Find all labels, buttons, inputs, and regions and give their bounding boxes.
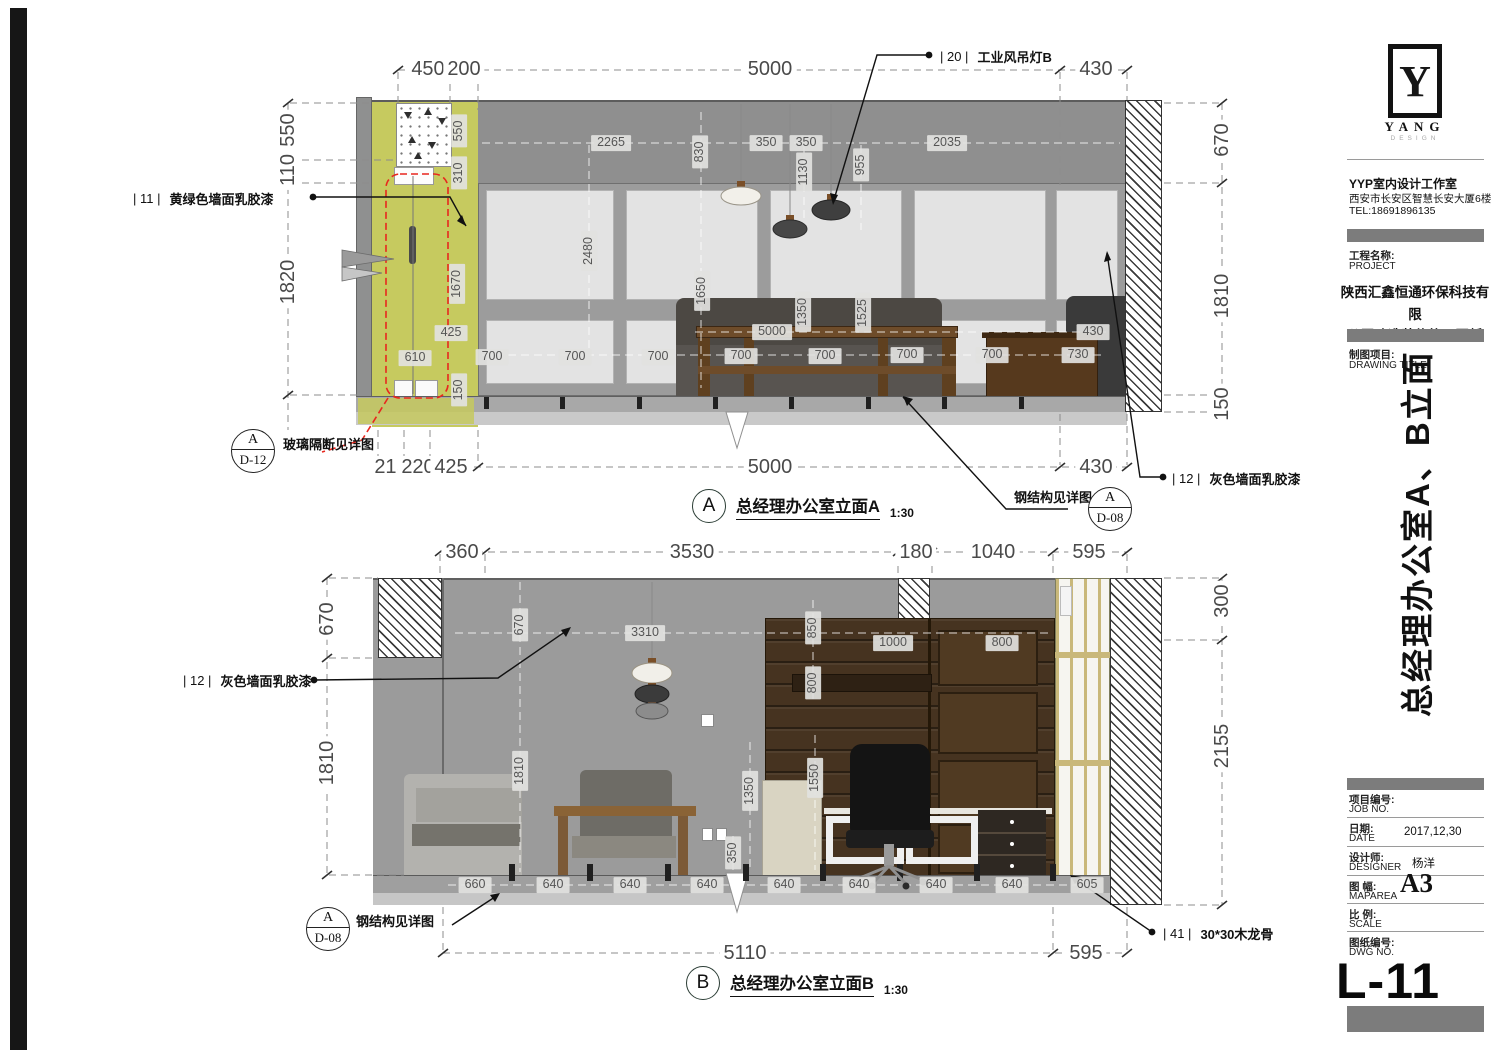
elevation-b-title: B 总经理办公室立面B 1:30 xyxy=(686,966,908,1000)
dim-label: 1040 xyxy=(967,541,1020,563)
stud-blocking xyxy=(1055,760,1110,766)
stud-partition-section xyxy=(1055,578,1110,880)
glass-panel xyxy=(770,190,902,300)
glass-panel xyxy=(1056,190,1118,300)
armchair-leg xyxy=(558,816,568,876)
dim-label: 5000 xyxy=(744,58,797,80)
dim-label: 2265 xyxy=(591,135,631,151)
dim-label: 300 xyxy=(1211,580,1233,621)
date-value: 2017,12,30 xyxy=(1404,826,1462,838)
job-label-en: JOB NO. xyxy=(1349,804,1389,815)
dim-label: 670 xyxy=(316,598,338,639)
dim-label: 605 xyxy=(1071,877,1104,893)
armchair-armrest xyxy=(554,806,696,816)
logo-box: Y xyxy=(1388,44,1442,118)
elevation-a-title: A 总经理办公室立面A 1:30 xyxy=(692,489,914,523)
sheet-binding-bar xyxy=(10,8,27,1050)
dim-label: 200 xyxy=(443,58,484,80)
dim-label: 150 xyxy=(451,374,467,407)
elevB-right-wall-section xyxy=(1110,578,1162,905)
glass-panel xyxy=(914,190,1046,300)
dim-label: 700 xyxy=(642,349,675,365)
dim-label: 5000 xyxy=(752,324,792,340)
dim-label: 1820 xyxy=(277,256,299,309)
office-chair-b-seat xyxy=(846,830,934,848)
logo-mark: Y xyxy=(1399,56,1431,107)
titleblock-bar xyxy=(1347,778,1484,790)
callout-paint-12-a: | 12 | 灰色墙面乳胶漆 xyxy=(1172,469,1300,488)
dim-label: 700 xyxy=(809,348,842,364)
concrete-triangle xyxy=(408,136,416,143)
dim-label: 2035 xyxy=(927,135,967,151)
size-value: A3 xyxy=(1400,868,1433,899)
dim-label: 1130 xyxy=(796,153,812,192)
dim-label: 640 xyxy=(920,877,953,893)
titleblock-divider xyxy=(1347,846,1484,847)
titleblock-divider xyxy=(1347,903,1484,904)
concrete-triangle xyxy=(414,152,422,159)
studio-name: YYP室内设计工作室 xyxy=(1349,175,1457,192)
dim-label: 550 xyxy=(451,115,467,148)
dim-label: 5000 xyxy=(744,456,797,478)
office-chair-b-back xyxy=(850,744,930,840)
sheet-title-vertical: 总经理办公室A、B立面 xyxy=(1391,447,1435,717)
dim-label: 350 xyxy=(725,837,741,870)
callout-paint-12-b: | 12 | 灰色墙面乳胶漆 xyxy=(183,671,311,690)
detail-ref-letter: A xyxy=(1089,488,1131,508)
dim-label: 640 xyxy=(768,877,801,893)
dim-label: 430 xyxy=(1075,456,1116,478)
dim-label: 850 xyxy=(805,612,821,645)
dim-label: 1550 xyxy=(807,758,823,798)
dim-label: 640 xyxy=(996,877,1029,893)
dim-label: 150 xyxy=(1211,383,1233,424)
dim-label: 1650 xyxy=(694,271,710,311)
detail-ref-d12: A D-12 xyxy=(231,429,275,473)
sofa-b-cushion xyxy=(416,788,522,822)
detail-ref-sheet: D-08 xyxy=(315,928,342,948)
callout-label: 30*30木龙骨 xyxy=(1200,924,1273,943)
dim-label: 640 xyxy=(691,877,724,893)
elevB-floor-base xyxy=(373,893,1127,905)
drawer-divider xyxy=(978,832,1046,834)
dim-label: 360 xyxy=(441,541,482,563)
date-label-en: DATE xyxy=(1349,833,1375,844)
dim-label: 350 xyxy=(750,135,783,151)
dim-label: 670 xyxy=(512,609,528,642)
designer-label-en: DESIGNER xyxy=(1349,862,1401,873)
callout-paint-11: | 11 | 黄绿色墙面乳胶漆 xyxy=(133,189,274,208)
callout-label: 工业风吊灯B xyxy=(977,47,1051,66)
dim-label: 110 xyxy=(277,150,299,190)
logo-sub: DESIGN xyxy=(1378,135,1452,142)
callout-tag: | 12 | xyxy=(1172,471,1200,486)
dim-label: 2155 xyxy=(1211,720,1233,773)
dim-label: 700 xyxy=(725,348,758,364)
console-table-top xyxy=(696,326,958,338)
logo-name: YANG xyxy=(1378,119,1452,135)
sofa-b-seat xyxy=(412,824,520,846)
callout-tag: | 12 | xyxy=(183,673,211,688)
dim-label: 800 xyxy=(805,667,821,700)
dim-label: 610 xyxy=(399,350,432,366)
dim-label: 5110 xyxy=(719,942,770,964)
elevation-b-letter: B xyxy=(686,966,720,1000)
callout-label: 灰色墙面乳胶漆 xyxy=(220,671,311,690)
dim-label: 955 xyxy=(853,149,869,182)
wall-switch xyxy=(701,714,714,727)
titleblock-divider xyxy=(1347,931,1484,932)
detail-ref-d08-b: A D-08 xyxy=(306,907,350,951)
desk-a xyxy=(986,334,1098,398)
dim-label: 640 xyxy=(614,877,647,893)
steel-structure-note-b: 钢结构见详图 xyxy=(356,911,434,930)
elevA-wall-return xyxy=(356,97,372,425)
callout-light-20: | 20 | 工业风吊灯B xyxy=(940,47,1052,66)
concrete-triangle xyxy=(424,108,432,115)
drawer-handle xyxy=(1010,842,1014,846)
scale-label-en: SCALE xyxy=(1349,919,1382,930)
concrete-triangle xyxy=(438,118,446,125)
dim-label: 700 xyxy=(976,347,1009,363)
armchair-leg xyxy=(678,816,688,876)
elevA-right-wall-section xyxy=(1125,100,1162,412)
dim-label: 3530 xyxy=(666,541,719,563)
dim-label: 180 xyxy=(895,541,936,563)
steel-structure-note-a: 钢结构见详图 xyxy=(1014,487,1092,506)
size-label-en: MAPAREA xyxy=(1349,891,1397,902)
door-handle xyxy=(409,226,416,264)
drawing-sheet: | 11 | 黄绿色墙面乳胶漆 | 20 | 工业风吊灯B | 12 | 灰色墙… xyxy=(0,0,1500,1061)
studio-phone: TEL:18691896135 xyxy=(1349,205,1435,217)
detail-ref-sheet: D-08 xyxy=(1097,508,1124,528)
dim-label: 830 xyxy=(692,136,708,169)
project-name-line1: 陕西汇鑫恒通环保科技有限 xyxy=(1340,282,1490,325)
dim-label: 310 xyxy=(451,157,467,190)
dim-label: 595 xyxy=(1068,541,1109,563)
dim-label: 660 xyxy=(459,877,492,893)
wall-switch xyxy=(702,828,713,841)
pipe-elbow xyxy=(1060,586,1072,616)
detail-ref-sheet: D-12 xyxy=(240,450,267,470)
callout-joist-41: | 41 | 30*30木龙骨 xyxy=(1163,924,1273,943)
dim-label: 350 xyxy=(790,135,823,151)
elevation-a-scale: 1:30 xyxy=(890,506,914,523)
drawer-handle xyxy=(1010,820,1014,824)
concrete-triangle xyxy=(404,112,412,119)
glass-partition-note: 玻璃隔断见详图 xyxy=(283,434,374,453)
dim-label: 430 xyxy=(1077,324,1110,340)
dim-label: 800 xyxy=(986,635,1019,651)
dim-label: 425 xyxy=(435,325,468,341)
studio-address: 西安市长安区智慧长安大厦6楼 xyxy=(1349,191,1491,206)
dim-label: 430 xyxy=(1075,58,1116,80)
dim-label: 1810 xyxy=(512,751,528,791)
project-label-en: PROJECT xyxy=(1349,261,1396,272)
titleblock-bar xyxy=(1347,229,1484,242)
callout-tag: | 41 | xyxy=(1163,926,1191,941)
dim-label: 1810 xyxy=(316,737,338,790)
detail-ref-letter: A xyxy=(232,430,274,450)
elevation-b-title-text: 总经理办公室立面B xyxy=(730,970,874,997)
dim-label: 550 xyxy=(277,109,299,150)
sheet-number: L-11 xyxy=(1336,952,1440,1010)
drawer-divider xyxy=(978,854,1046,856)
elevation-a-letter: A xyxy=(692,489,726,523)
detail-ref-d08-a: A D-08 xyxy=(1088,487,1132,531)
callout-label: 黄绿色墙面乳胶漆 xyxy=(169,189,273,208)
elevation-a-title-text: 总经理办公室立面A xyxy=(736,493,880,520)
stud-blocking xyxy=(1055,652,1110,658)
dim-label: 700 xyxy=(891,347,924,363)
dim-label: 1670 xyxy=(449,264,465,304)
dim-label: 670 xyxy=(1211,119,1233,160)
detail-ref-letter: A xyxy=(307,908,349,928)
dim-label: 640 xyxy=(843,877,876,893)
wood-cabinet-panel xyxy=(938,692,1038,754)
elevation-b-scale: 1:30 xyxy=(884,983,908,1000)
titleblock-divider xyxy=(1347,159,1484,160)
callout-label: 灰色墙面乳胶漆 xyxy=(1209,469,1300,488)
concrete-triangle xyxy=(428,142,436,149)
drawer-handle xyxy=(1010,864,1014,868)
dim-label: 700 xyxy=(476,349,509,365)
dim-label: 1000 xyxy=(873,635,913,651)
dim-label: 3310 xyxy=(625,625,665,641)
dim-label: 1350 xyxy=(795,292,811,332)
callout-tag: | 20 | xyxy=(940,49,968,64)
wall-notch xyxy=(394,167,434,185)
glass-panel xyxy=(626,190,758,300)
dim-label: 640 xyxy=(537,877,570,893)
titleblock-divider xyxy=(1347,817,1484,818)
dim-label: 595 xyxy=(1065,942,1106,964)
titleblock-bar xyxy=(1347,1006,1484,1032)
dim-label: 1350 xyxy=(742,771,758,811)
console-table-shelf xyxy=(698,366,956,374)
dim-label: 700 xyxy=(559,349,592,365)
dim-label: 2480 xyxy=(581,231,597,271)
dim-label: 730 xyxy=(1062,347,1095,363)
dim-label: 1810 xyxy=(1211,270,1233,323)
dim-label: 425 xyxy=(430,456,471,478)
callout-tag: | 11 | xyxy=(133,191,160,206)
armchair-seat xyxy=(572,836,676,858)
dim-label: 1525 xyxy=(855,293,871,333)
titleblock-bar xyxy=(1347,329,1484,342)
elevB-left-wall-section xyxy=(378,578,442,658)
